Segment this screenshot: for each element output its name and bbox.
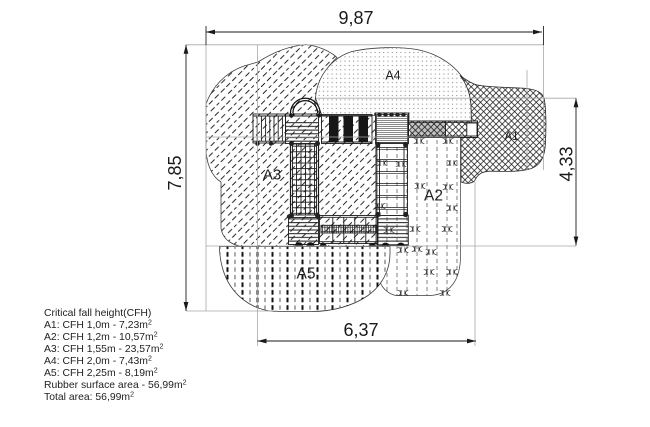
svg-text:6,37: 6,37 bbox=[343, 320, 378, 340]
svg-text:A5: A5 bbox=[297, 266, 316, 283]
svg-text:A4: A4 bbox=[385, 69, 400, 83]
svg-text:A1: A1 bbox=[504, 131, 518, 143]
svg-text:Critical fall height(CFH): Critical fall height(CFH) bbox=[44, 308, 151, 319]
svg-text:A3: A3 bbox=[263, 167, 281, 184]
svg-text:A1: CFH 1,0m - 7,23m2: A1: CFH 1,0m - 7,23m2 bbox=[44, 320, 152, 332]
svg-text:A2: CFH 1,2m - 10,57m2: A2: CFH 1,2m - 10,57m2 bbox=[44, 332, 158, 344]
svg-text:A2: A2 bbox=[424, 188, 443, 205]
svg-text:A3: CFH 1,55m - 23,57m2: A3: CFH 1,55m - 23,57m2 bbox=[44, 344, 164, 356]
svg-text:7,85: 7,85 bbox=[165, 155, 185, 190]
svg-text:A4: CFH 2,0m - 7,43m2: A4: CFH 2,0m - 7,43m2 bbox=[44, 356, 152, 368]
svg-text:9,87: 9,87 bbox=[338, 8, 373, 28]
svg-text:Total area: 56,99m2: Total area: 56,99m2 bbox=[44, 392, 134, 404]
svg-text:Rubber surface area - 56,99m2: Rubber surface area - 56,99m2 bbox=[44, 380, 187, 392]
svg-text:4,33: 4,33 bbox=[557, 146, 577, 181]
svg-text:A5: CFH 2,25m - 8,19m2: A5: CFH 2,25m - 8,19m2 bbox=[44, 368, 158, 380]
